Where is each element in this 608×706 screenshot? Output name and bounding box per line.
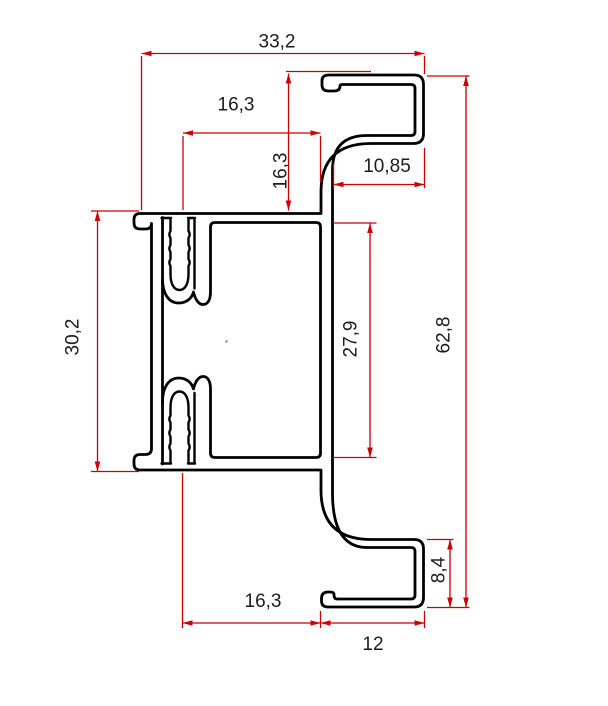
dim-rebate-width-top: 16,3 — [183, 95, 321, 211]
dim-inner-height: 27,9 — [333, 223, 377, 458]
centroid-dot — [225, 340, 227, 342]
dim-hook-depth-top-label: 10,85 — [363, 156, 411, 177]
dim-web-width-bottom-label: 16,3 — [245, 591, 282, 612]
dim-hook-width-bottom-label: 12 — [362, 634, 383, 655]
dim-rebate-height-label: 16,3 — [271, 153, 292, 190]
drawing-canvas: 33,2 16,3 16,3 10,85 30,2 27,9 — [0, 0, 608, 706]
dim-overall-height-label: 62,8 — [434, 317, 455, 354]
profile-drawing: 33,2 16,3 16,3 10,85 30,2 27,9 — [0, 0, 608, 706]
dim-extension — [91, 211, 139, 472]
main-cavity-outline — [163, 223, 321, 458]
dim-inner-height-label: 27,9 — [341, 321, 362, 358]
dim-hook-width-bottom: 12 — [321, 611, 425, 655]
dim-hook-height-bottom: 8,4 — [427, 540, 454, 608]
dim-overall-width-top-label: 33,2 — [259, 32, 296, 53]
dim-overall-height: 62,8 — [427, 76, 470, 608]
dim-body-height-left-label: 30,2 — [63, 319, 84, 356]
screw-channel-bottom — [169, 392, 189, 464]
dim-extension — [183, 136, 321, 210]
dim-hook-depth-top: 10,85 — [334, 148, 425, 188]
web-underside-top — [162, 218, 196, 289]
dim-web-width-bottom: 16,3 — [183, 473, 321, 628]
screw-channel-top — [169, 219, 189, 291]
dim-body-height-left: 30,2 — [63, 211, 140, 472]
dim-hook-height-bottom-label: 8,4 — [429, 556, 450, 583]
dim-rebate-width-top-label: 16,3 — [218, 95, 255, 116]
web-underside-bottom — [162, 393, 196, 464]
